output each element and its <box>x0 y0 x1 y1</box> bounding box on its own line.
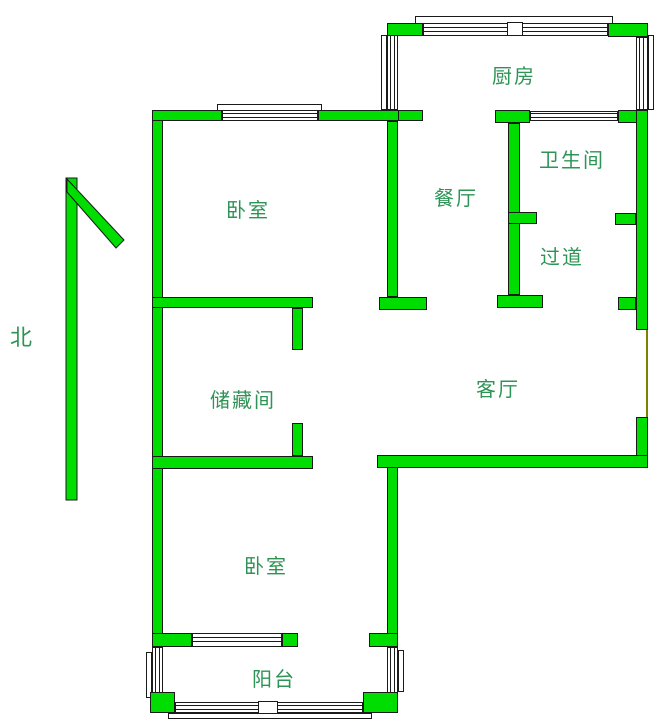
wall-dining-left <box>387 121 398 297</box>
wall-left-outer <box>152 110 163 647</box>
wall-bedroom-south-bottom-b <box>282 633 298 647</box>
jamb-hallway-left <box>497 295 543 308</box>
wall-storage-top <box>152 297 313 308</box>
wall-bedroom-north-top-a <box>152 110 222 121</box>
room-label-dining-room: 餐厅 <box>434 189 478 209</box>
floor-plan: 北 厨房 卫生间 餐厅 过道 卧室 储藏间 客厅 卧室 阳台 <box>0 0 658 723</box>
jamb-dining-left <box>379 297 427 310</box>
wall-balcony-corner-left <box>150 692 175 713</box>
room-label-living-room: 客厅 <box>476 380 520 400</box>
room-label-bedroom-south: 卧室 <box>244 557 288 577</box>
window-bedroom-south <box>192 633 282 647</box>
opening-living-right <box>646 330 648 418</box>
wall-bedroom-south-right <box>387 467 398 635</box>
window-sill-balcony-right <box>398 650 404 692</box>
compass-north-label: 北 <box>10 327 32 349</box>
wall-bedroom-south-bottom-c <box>369 633 398 647</box>
wall-kitchen-bottom-a <box>398 110 423 121</box>
window-bedroom-north <box>222 110 318 121</box>
jamb-storage-bottom <box>292 423 303 456</box>
window-sill-kitchen-right <box>648 35 654 110</box>
north-arrow-icon <box>0 0 140 510</box>
room-label-storage-room: 储藏间 <box>210 391 276 411</box>
window-balcony-right <box>387 647 398 695</box>
wall-bathroom-left <box>508 123 520 295</box>
window-mullion-kitchen <box>507 22 523 36</box>
window-sill-balcony-bottom <box>168 713 372 719</box>
wall-right-upper <box>636 110 648 330</box>
wall-storage-bottom <box>152 456 313 469</box>
window-kitchen-right <box>636 37 648 110</box>
jamb-bathroom-divider-right <box>615 213 636 225</box>
wall-bedroom-south-bottom-a <box>152 633 192 647</box>
wall-living-bottom <box>377 455 648 468</box>
jamb-bathroom-divider-left <box>508 212 537 224</box>
room-label-bathroom: 卫生间 <box>539 151 605 171</box>
room-label-bedroom-north: 卧室 <box>226 201 270 221</box>
room-label-kitchen: 厨房 <box>492 67 536 87</box>
jamb-storage-top <box>292 308 303 350</box>
wall-kitchen-top-right <box>608 23 648 37</box>
window-kitchen-left <box>387 35 398 110</box>
room-label-balcony: 阳台 <box>252 670 296 690</box>
window-bathroom-top <box>530 111 618 121</box>
jamb-hallway-right <box>618 297 636 310</box>
wall-kitchen-bottom-b <box>495 110 530 123</box>
room-label-hallway: 过道 <box>540 248 584 268</box>
wall-balcony-corner-right <box>363 692 398 713</box>
